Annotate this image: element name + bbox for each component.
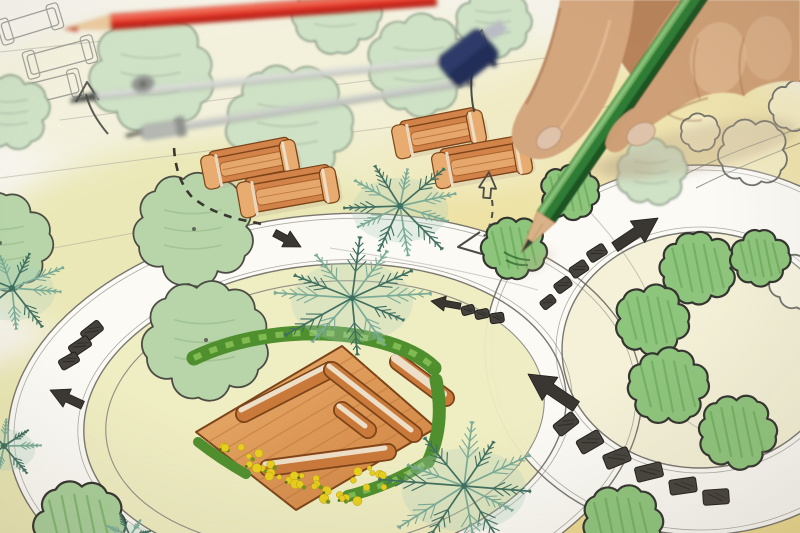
vignette [0, 0, 800, 533]
lighting-vignette [0, 0, 800, 533]
landscape-plan-photo [0, 0, 800, 533]
photo-stage [0, 0, 800, 533]
